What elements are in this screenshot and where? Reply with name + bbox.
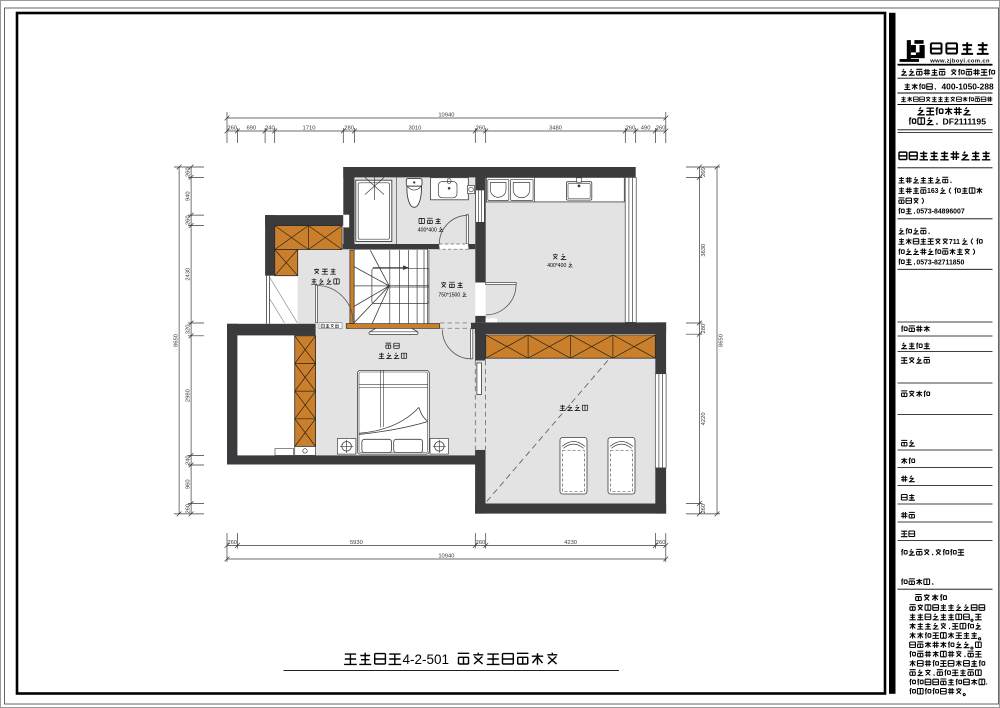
svg-text:260: 260 (186, 504, 192, 514)
svg-text:163: 163 (927, 188, 939, 195)
svg-text:260: 260 (476, 126, 486, 132)
svg-text:260: 260 (656, 126, 666, 132)
svg-text:www.zjboyi.com.cn: www.zjboyi.com.cn (929, 58, 990, 64)
svg-text:5930: 5930 (350, 540, 363, 546)
svg-text:0573-84896007: 0573-84896007 (916, 209, 964, 216)
svg-text:260: 260 (227, 126, 237, 132)
svg-text:3630: 3630 (701, 244, 707, 257)
svg-text:240: 240 (186, 455, 192, 465)
svg-text:400-1050-288: 400-1050-288 (942, 82, 994, 92)
svg-text:1710: 1710 (303, 126, 316, 132)
svg-text:260: 260 (476, 540, 486, 546)
svg-text:260: 260 (186, 167, 192, 177)
svg-text:711: 711 (949, 239, 960, 246)
svg-text:400*400: 400*400 (418, 227, 437, 233)
svg-text:260: 260 (626, 126, 636, 132)
svg-text:4230: 4230 (564, 540, 577, 546)
svg-text:3480: 3480 (549, 126, 562, 132)
svg-text:DF2111195: DF2111195 (943, 117, 987, 127)
svg-text:490: 490 (641, 126, 651, 132)
svg-text:260: 260 (186, 215, 192, 225)
svg-text:260: 260 (701, 167, 707, 177)
svg-text:960: 960 (186, 479, 192, 489)
svg-text:690: 690 (246, 126, 256, 132)
svg-text:10940: 10940 (438, 553, 454, 559)
svg-text:260: 260 (701, 504, 707, 514)
svg-text:260: 260 (656, 540, 666, 546)
svg-text:4220: 4220 (701, 412, 707, 425)
svg-text:280: 280 (344, 126, 354, 132)
svg-text:320: 320 (186, 325, 192, 335)
svg-text:10940: 10940 (438, 112, 454, 118)
svg-text:400*400: 400*400 (547, 263, 566, 269)
svg-text:240: 240 (265, 126, 275, 132)
svg-text:2430: 2430 (186, 268, 192, 281)
svg-text:3010: 3010 (408, 126, 421, 132)
svg-text:750*1500: 750*1500 (438, 292, 460, 298)
svg-text:8650: 8650 (174, 334, 180, 347)
svg-text:2980: 2980 (186, 389, 192, 402)
svg-text:940: 940 (186, 191, 192, 201)
svg-text:280: 280 (701, 324, 707, 334)
svg-text:8650: 8650 (719, 334, 725, 347)
svg-text:4-2-501: 4-2-501 (403, 652, 450, 667)
svg-text:260: 260 (227, 540, 237, 546)
svg-text:.: . (986, 678, 988, 687)
svg-text:0573-82711850: 0573-82711850 (916, 259, 964, 266)
